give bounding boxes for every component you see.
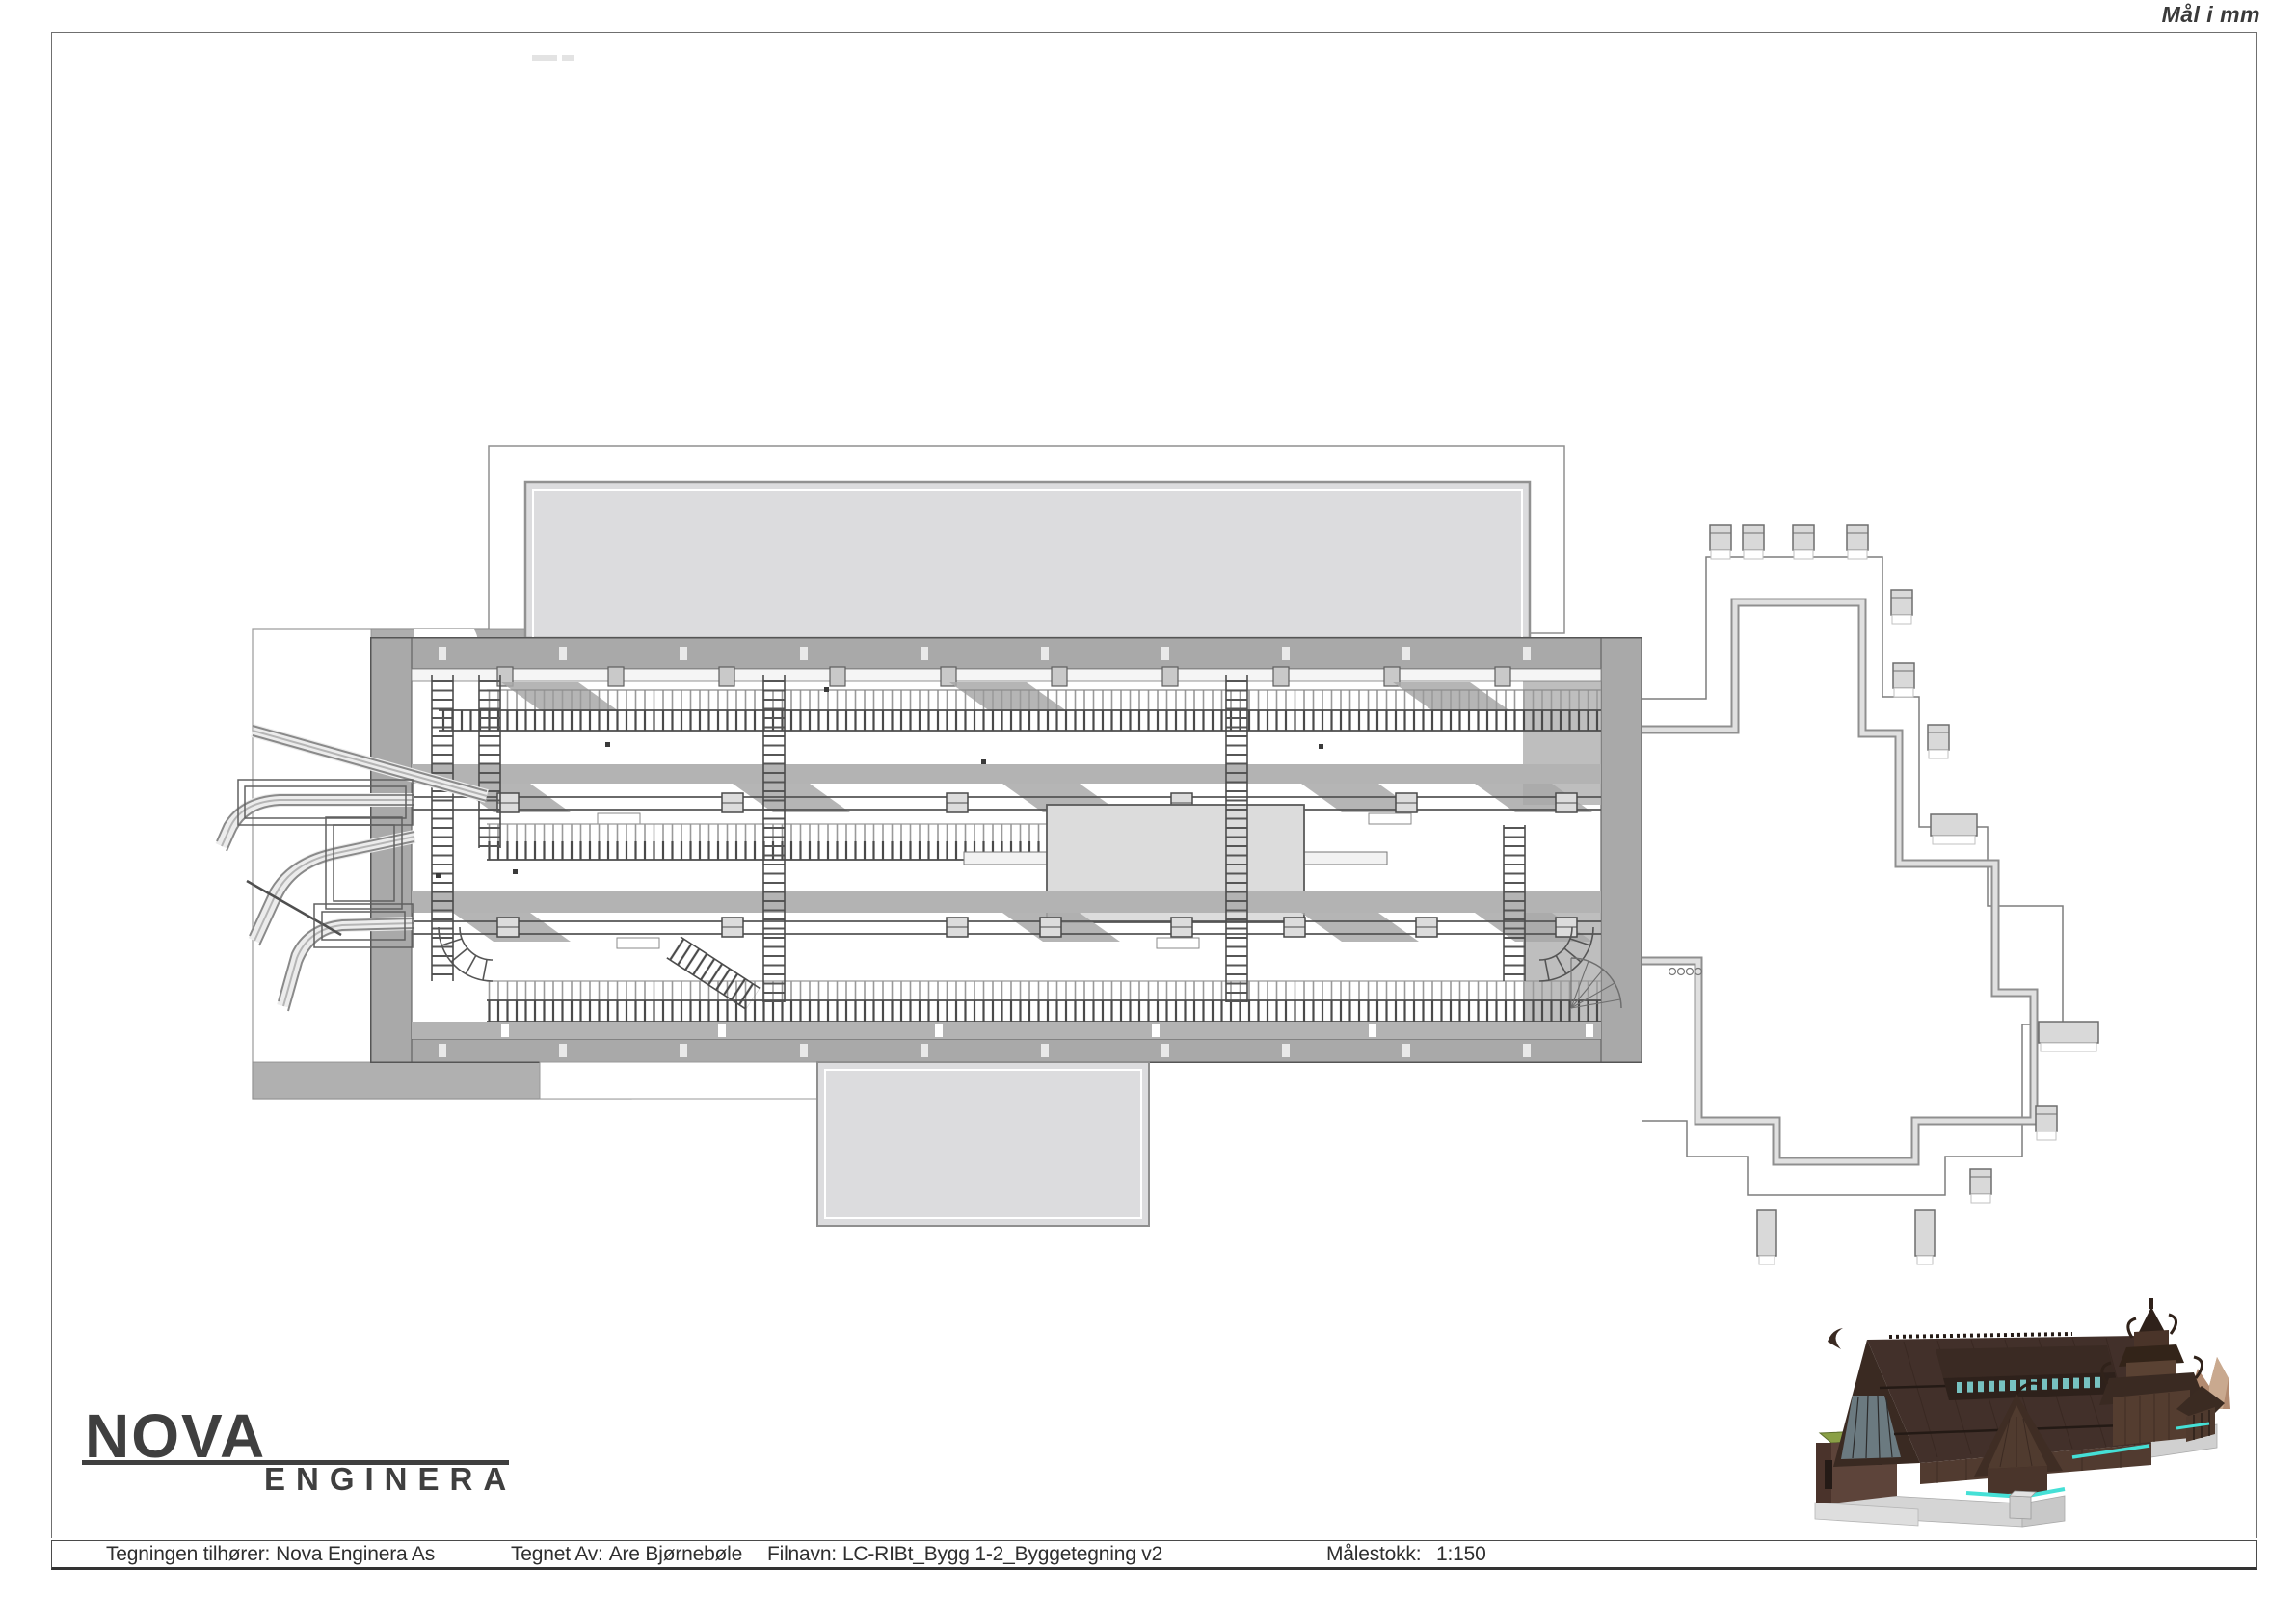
faint-plot-mark <box>532 55 574 61</box>
scale-value: 1:150 <box>1436 1541 1486 1568</box>
owner-value: Nova Enginera As <box>276 1543 435 1565</box>
terrace-footprint <box>1642 525 2098 1264</box>
owner-field: Tegningen tilhører:Nova Enginera As <box>106 1541 435 1568</box>
filename-value: LC-RIBt_Bygg 1-2_Byggetegning v2 <box>842 1543 1162 1565</box>
drawn-by-field: Tegnet Av:Are Bjørnebøle <box>511 1541 742 1568</box>
filename-label: Filnavn: <box>767 1543 837 1565</box>
logo-secondary-text: ENGINERA <box>264 1463 517 1495</box>
logo-primary-text: NOVA <box>85 1405 266 1467</box>
drawn-by-label: Tegnet Av: <box>511 1543 603 1565</box>
roof-slab <box>525 482 1530 638</box>
drawn-by-value: Are Bjørnebøle <box>609 1543 742 1565</box>
filename-field: Filnavn:LC-RIBt_Bygg 1-2_Byggetegning v2 <box>767 1541 1162 1568</box>
building-render-3d <box>1815 1298 2230 1527</box>
scale-label: Målestokk: <box>1326 1541 1421 1568</box>
company-logo: NOVA ENGINERA <box>85 1405 528 1502</box>
drawing-sheet: Mål i mm <box>0 0 2296 1623</box>
floor-plan-drawing <box>0 0 2296 1623</box>
south-annex <box>540 1062 1149 1226</box>
title-block: Tegningen tilhører:Nova Enginera As Tegn… <box>51 1540 2257 1570</box>
owner-label: Tegningen tilhører: <box>106 1543 270 1565</box>
